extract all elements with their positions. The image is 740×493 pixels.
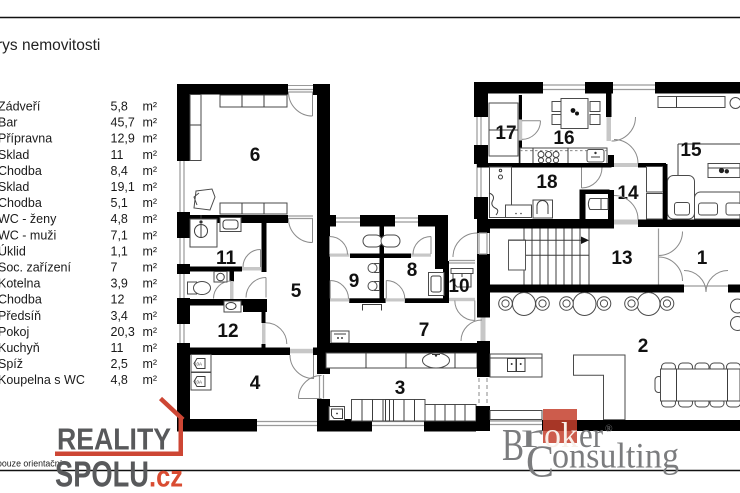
svg-text:Sklad: Sklad	[0, 180, 29, 194]
svg-text:2: 2	[638, 336, 649, 357]
svg-text:11: 11	[111, 148, 124, 162]
svg-text:18: 18	[536, 172, 557, 193]
svg-text:WC - ženy: WC - ženy	[0, 212, 57, 226]
svg-text:m²: m²	[143, 228, 158, 242]
svg-text:8: 8	[407, 260, 418, 281]
svg-text:m²: m²	[143, 244, 158, 258]
svg-text:Kotelna: Kotelna	[0, 277, 40, 291]
svg-text:12: 12	[217, 321, 238, 342]
svg-text:19,1: 19,1	[111, 180, 135, 194]
svg-text:SPOLU: SPOLU	[55, 454, 149, 493]
svg-text:1,1: 1,1	[111, 244, 128, 258]
svg-text:10A: 10A	[194, 362, 202, 367]
svg-text:Pokoj: Pokoj	[0, 325, 29, 339]
svg-text:Spíž: Spíž	[0, 357, 23, 371]
svg-text:11: 11	[111, 341, 124, 355]
svg-text:Chodba: Chodba	[0, 164, 42, 178]
svg-text:m²: m²	[143, 309, 158, 323]
svg-text:8,4: 8,4	[111, 164, 128, 178]
svg-text:11: 11	[216, 248, 237, 269]
svg-text:16: 16	[553, 128, 574, 149]
svg-text:.cz: .cz	[149, 461, 183, 493]
svg-text:9: 9	[349, 271, 360, 292]
svg-text:Soc. zařízení: Soc. zařízení	[0, 261, 71, 275]
svg-text:Úklid: Úklid	[0, 243, 26, 258]
svg-text:Přípravna: Přípravna	[0, 132, 52, 146]
svg-text:m²: m²	[143, 293, 158, 307]
svg-text:12: 12	[111, 293, 125, 307]
svg-text:m²: m²	[143, 100, 158, 114]
svg-text:5: 5	[291, 281, 302, 302]
svg-text:m²: m²	[143, 277, 158, 291]
svg-text:C: C	[526, 436, 554, 487]
svg-text:1: 1	[697, 248, 708, 269]
svg-text:m²: m²	[143, 180, 158, 194]
svg-text:2,5: 2,5	[111, 357, 128, 371]
svg-text:7: 7	[419, 320, 430, 341]
svg-text:®: ®	[605, 424, 613, 435]
svg-text:m²: m²	[143, 196, 158, 210]
svg-text:pouze orientační: pouze orientační	[0, 459, 63, 469]
svg-text:15: 15	[680, 140, 702, 161]
svg-text:5,1: 5,1	[111, 196, 128, 210]
svg-text:17: 17	[495, 123, 516, 144]
svg-text:m²: m²	[143, 132, 158, 146]
svg-text:m²: m²	[143, 116, 158, 130]
svg-text:Kuchyň: Kuchyň	[0, 341, 40, 355]
svg-text:REALITY: REALITY	[57, 422, 171, 457]
svg-text:Chodba: Chodba	[0, 196, 42, 210]
svg-text:m²: m²	[143, 357, 158, 371]
svg-text:7,1: 7,1	[111, 228, 128, 242]
svg-text:4: 4	[250, 373, 261, 394]
svg-text:14: 14	[617, 183, 639, 204]
svg-text:3,4: 3,4	[111, 309, 128, 323]
svg-text:Předsíň: Předsíň	[0, 309, 41, 323]
svg-text:m²: m²	[143, 325, 158, 339]
svg-text:m²: m²	[143, 164, 158, 178]
svg-text:WC - muži: WC - muži	[0, 228, 56, 242]
svg-text:rys nemovitosti: rys nemovitosti	[0, 37, 100, 54]
svg-text:m²: m²	[143, 148, 158, 162]
svg-text:Sklad: Sklad	[0, 148, 29, 162]
svg-text:4,8: 4,8	[111, 373, 128, 387]
svg-text:45,7: 45,7	[111, 116, 135, 130]
svg-text:5,8: 5,8	[111, 100, 128, 114]
svg-text:Bar: Bar	[0, 116, 17, 130]
svg-text:6: 6	[250, 145, 261, 166]
svg-text:4,8: 4,8	[111, 212, 128, 226]
svg-text:Koupelna s WC: Koupelna s WC	[0, 373, 85, 387]
svg-text:m²: m²	[143, 373, 158, 387]
svg-text:m²: m²	[143, 212, 158, 226]
svg-text:13: 13	[611, 248, 632, 269]
svg-text:10A: 10A	[194, 380, 202, 385]
svg-text:Zádveří: Zádveří	[0, 100, 41, 114]
svg-text:3,9: 3,9	[111, 277, 128, 291]
svg-text:12,9: 12,9	[111, 132, 135, 146]
svg-text:20,3: 20,3	[111, 325, 135, 339]
svg-text:onsulting: onsulting	[552, 436, 679, 476]
svg-text:m²: m²	[143, 261, 158, 275]
svg-text:7: 7	[111, 261, 118, 275]
svg-text:m²: m²	[143, 341, 158, 355]
svg-text:10: 10	[448, 276, 469, 297]
svg-text:3: 3	[395, 378, 406, 399]
svg-text:Chodba: Chodba	[0, 293, 42, 307]
